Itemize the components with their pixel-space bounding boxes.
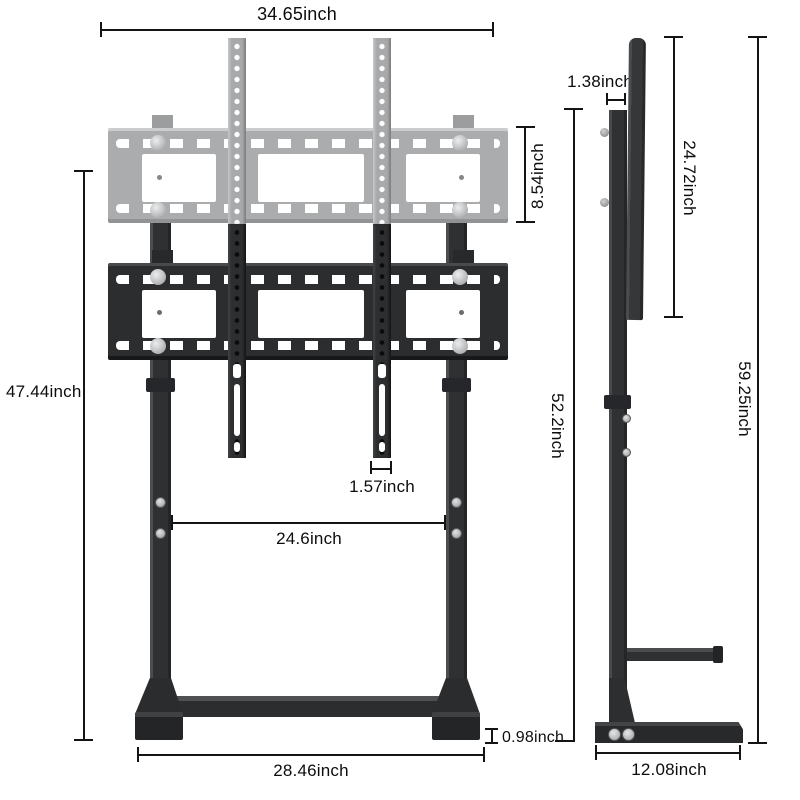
- dim-top-width-line: [101, 29, 494, 31]
- dim-base-depth-label: 12.08inch: [589, 760, 749, 780]
- dim-tick: [664, 316, 683, 318]
- strip-hook-slot: [233, 364, 241, 378]
- dim-tick: [492, 22, 494, 37]
- dim-base-width-line: [138, 754, 485, 756]
- dim-tick: [606, 93, 608, 105]
- dim-tick: [748, 36, 767, 38]
- window-center: [258, 290, 364, 338]
- slot-row-top: [116, 275, 500, 284]
- dim-tick: [137, 747, 139, 762]
- dim-tick: [171, 515, 173, 530]
- strip-slot: [379, 384, 385, 436]
- dim-tick: [485, 742, 498, 744]
- dim-total-height-line: [757, 37, 759, 744]
- dim-foot-height-label: 0.98inch: [502, 729, 564, 747]
- pilot-hole: [157, 175, 162, 180]
- dim-leg-spacing-label: 24.6inch: [229, 529, 389, 549]
- mount-knob: [600, 198, 609, 207]
- dim-top-width-label: 34.65inch: [217, 4, 377, 25]
- dim-tick: [100, 22, 102, 37]
- dim-total-height-label: 59.25inch: [734, 352, 754, 446]
- dim-tick: [74, 170, 93, 172]
- leg-screw: [451, 497, 462, 508]
- ghost-leg-tab-right: [453, 115, 474, 128]
- bracket-body: [108, 263, 508, 360]
- bolt: [150, 202, 166, 218]
- ghost-slot-row-top: [116, 139, 500, 148]
- dim-tick: [516, 221, 535, 223]
- ghost-slot-row-bottom: [116, 204, 500, 213]
- dim-column-height-line: [573, 109, 575, 742]
- leg-clamp-left: [146, 378, 175, 392]
- dim-base-width-label: 28.46inch: [231, 761, 391, 781]
- pilot-hole: [459, 175, 464, 180]
- bolt: [150, 269, 166, 285]
- dim-tick: [555, 740, 574, 742]
- side-shelf-endcap: [713, 646, 723, 663]
- dim-tick: [739, 745, 741, 760]
- leg-screw: [155, 497, 166, 508]
- dim-base-depth-line: [596, 752, 741, 754]
- mount-knob: [600, 128, 609, 137]
- ghost-window-center: [258, 154, 364, 202]
- dim-tick: [595, 745, 597, 760]
- dim-bracket-height-label: 8.54inch: [528, 136, 548, 216]
- dim-tick: [390, 461, 392, 474]
- dim-plate-height-line: [673, 37, 675, 318]
- dim-tick: [624, 93, 626, 105]
- ghost-window-right: [406, 154, 480, 202]
- tv-stand-dimension-diagram: 34.65inch: [0, 0, 800, 800]
- window-left: [142, 290, 216, 338]
- dim-tick: [748, 742, 767, 744]
- leg-clamp-right: [442, 378, 471, 392]
- dim-stand-height-label: 47.44inch: [6, 382, 82, 402]
- foot-right-wedge: [432, 678, 480, 714]
- side-screw: [622, 414, 631, 423]
- dim-leg-spacing-line: [172, 522, 446, 524]
- dim-bracket-height-line: [524, 127, 526, 223]
- strip-slot: [234, 384, 240, 436]
- foot-left: [135, 712, 183, 740]
- leg-tab-right: [453, 250, 474, 263]
- dim-tick: [483, 747, 485, 762]
- side-screw: [622, 448, 631, 457]
- bolt: [150, 338, 166, 354]
- slot-row-bottom: [116, 341, 500, 350]
- dim-stand-height-line: [83, 171, 85, 741]
- dim-strip-width-line: [372, 468, 392, 470]
- dim-strip-width-label: 1.57inch: [322, 477, 442, 497]
- strip-slot: [379, 442, 385, 452]
- bolt: [452, 338, 468, 354]
- leg-tab-left: [152, 250, 173, 263]
- side-mount-plate: [626, 38, 646, 320]
- base-crossbar: [163, 696, 454, 717]
- side-shelf-bar: [627, 648, 723, 661]
- base-screw: [622, 728, 635, 741]
- dim-plate-height-label: 24.72inch: [679, 133, 699, 223]
- dim-tick: [516, 126, 535, 128]
- dim-tick: [564, 108, 583, 110]
- pilot-hole: [157, 310, 162, 315]
- dim-column-height-label: 52.2inch: [547, 381, 567, 471]
- dim-tick: [74, 739, 93, 741]
- window-right: [406, 290, 480, 338]
- dim-tick: [485, 728, 498, 730]
- bolt: [150, 135, 166, 151]
- base-screw: [608, 728, 621, 741]
- bolt: [452, 135, 468, 151]
- strip-slot: [234, 442, 240, 452]
- side-column-clamp: [604, 395, 631, 409]
- ghost-leg-tab-left: [152, 115, 173, 128]
- bolt: [452, 269, 468, 285]
- bolt: [452, 202, 468, 218]
- leg-screw: [451, 528, 462, 539]
- dim-tick: [664, 36, 683, 38]
- side-column-flare: [609, 678, 635, 723]
- ghost-window-left: [142, 154, 216, 202]
- ghost-bracket-body: [108, 128, 508, 223]
- foot-left-wedge: [135, 678, 183, 714]
- leg-screw: [155, 528, 166, 539]
- pilot-hole: [459, 310, 464, 315]
- vesa-strip-right-ghost: [373, 38, 391, 224]
- strip-hook-slot: [378, 364, 386, 378]
- dim-tick: [370, 461, 372, 474]
- vesa-strip-left-ghost: [228, 38, 246, 224]
- foot-right: [432, 712, 480, 740]
